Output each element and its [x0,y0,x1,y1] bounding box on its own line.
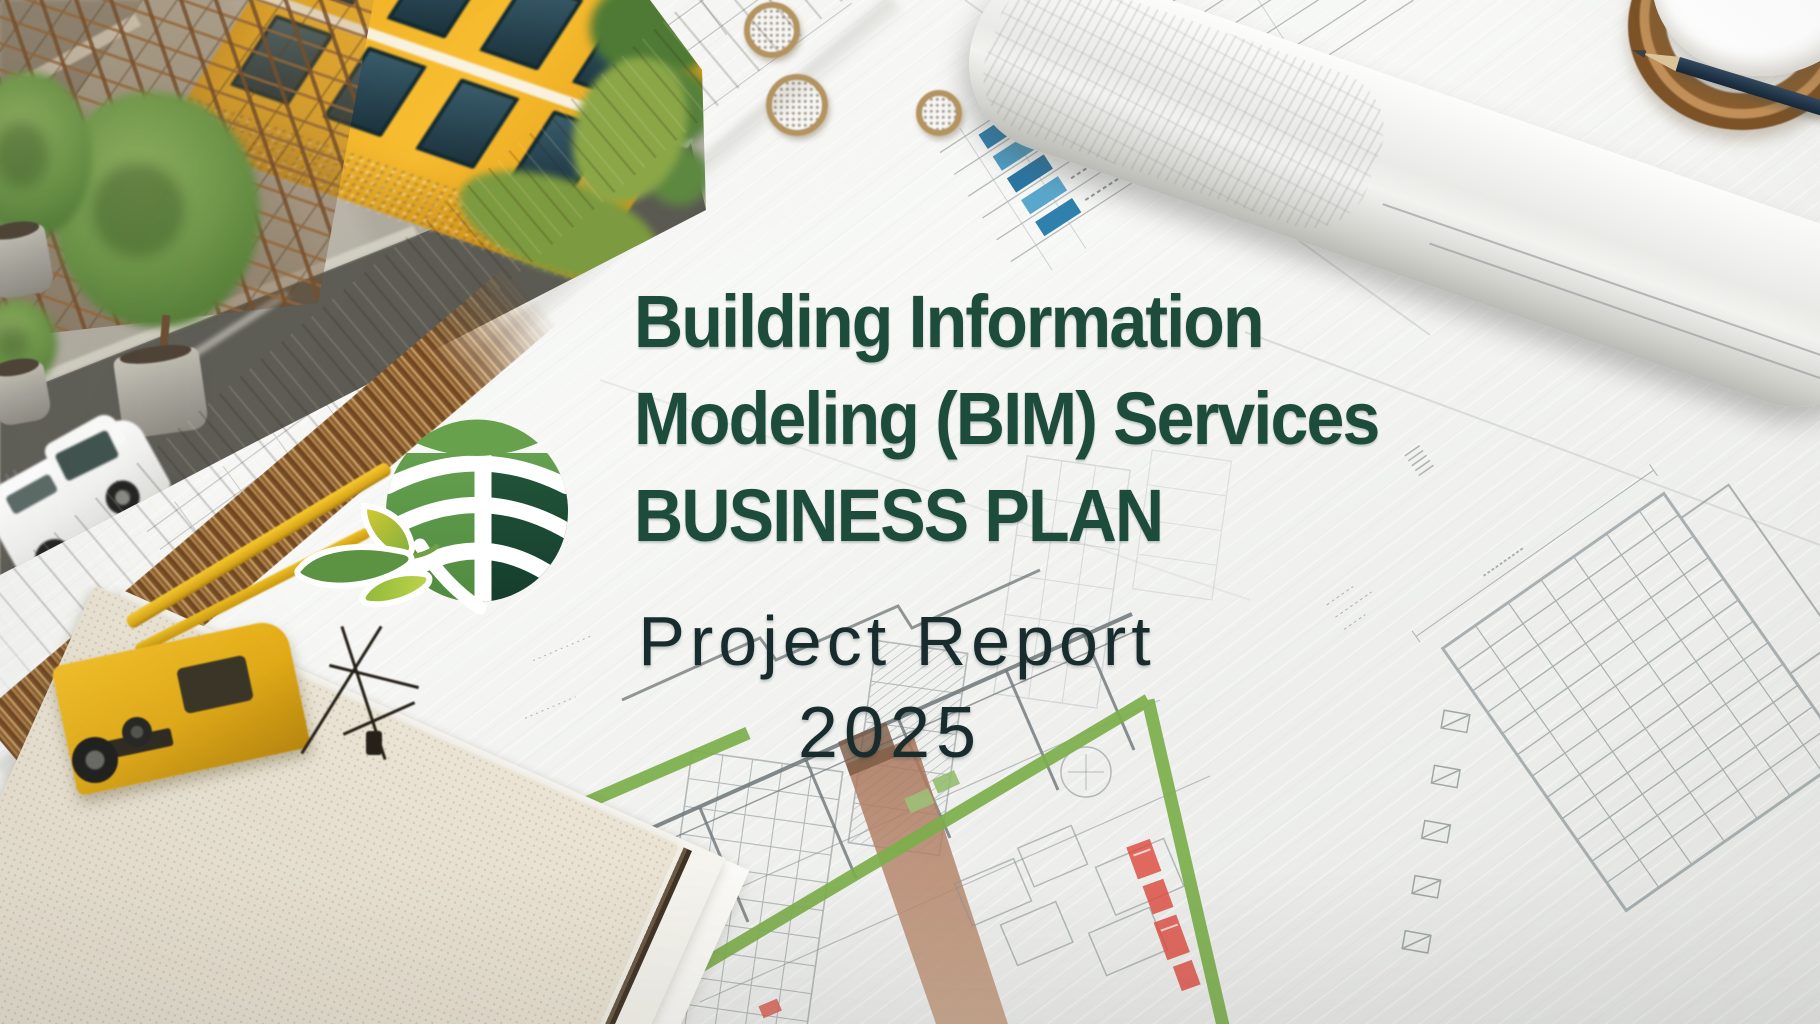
globe-with-leaves-logo [280,395,600,635]
title-line-3: BUSINESS PLAN [634,467,1379,564]
crane-wheel [122,717,152,747]
wooden-dowel [744,2,800,58]
crane-wheel [72,737,118,783]
crane-cab [176,655,254,715]
title-line-2: Modeling (BIM) Services [634,370,1379,467]
wooden-dowel [916,90,962,136]
globe-cap [416,420,538,456]
title-line-1: Building Information [634,273,1379,370]
cover-subtitle: Project Report [497,601,1297,681]
schedule-table-drawing [1410,431,1820,919]
cover-year: 2025 [490,692,1290,774]
wooden-dowel [766,74,828,136]
building-window [386,0,491,39]
building-window [479,0,584,71]
bim-business-plan-cover: Building Information Modeling (BIM) Serv… [0,0,1820,1024]
crane-hook [366,731,382,755]
cover-title: Building Information Modeling (BIM) Serv… [634,273,1379,564]
